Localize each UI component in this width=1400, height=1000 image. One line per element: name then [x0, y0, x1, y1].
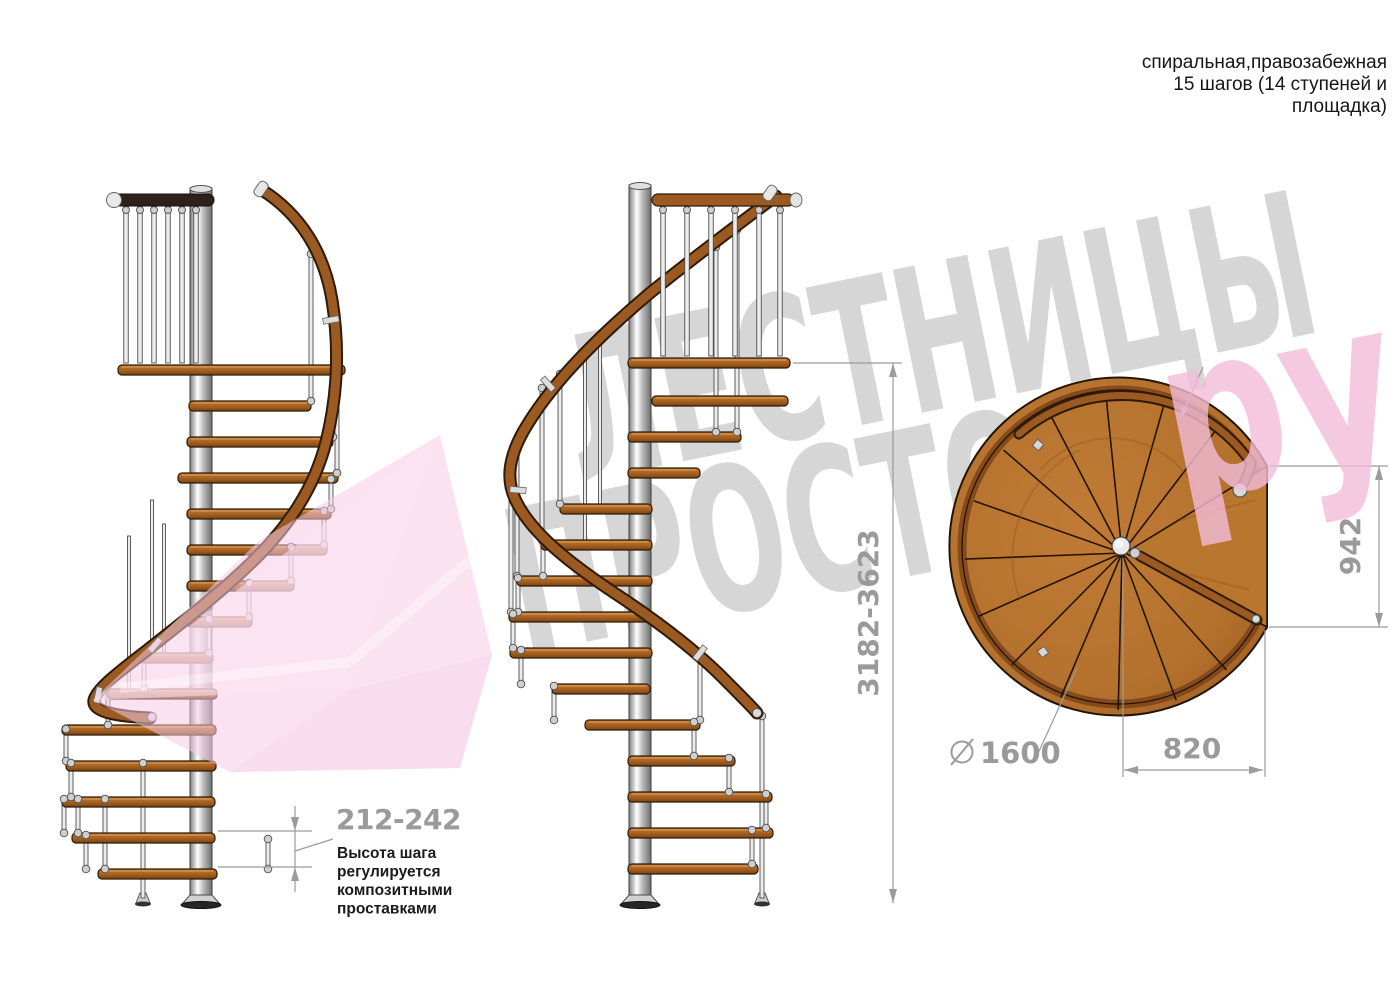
header-note-line1: спиральная,правозабежная [1142, 52, 1387, 74]
drawing-canvas: ЛЕСТНИЦЫ ПРОСТО. [0, 0, 1400, 1000]
header-note: спиральная,правозабежная 15 шагов (14 ст… [1142, 52, 1387, 118]
header-note-line2: 15 шагов (14 ступеней и [1142, 74, 1387, 96]
watermark-suffix: ру [1140, 266, 1400, 538]
header-note-line3: площадка) [1142, 96, 1387, 118]
